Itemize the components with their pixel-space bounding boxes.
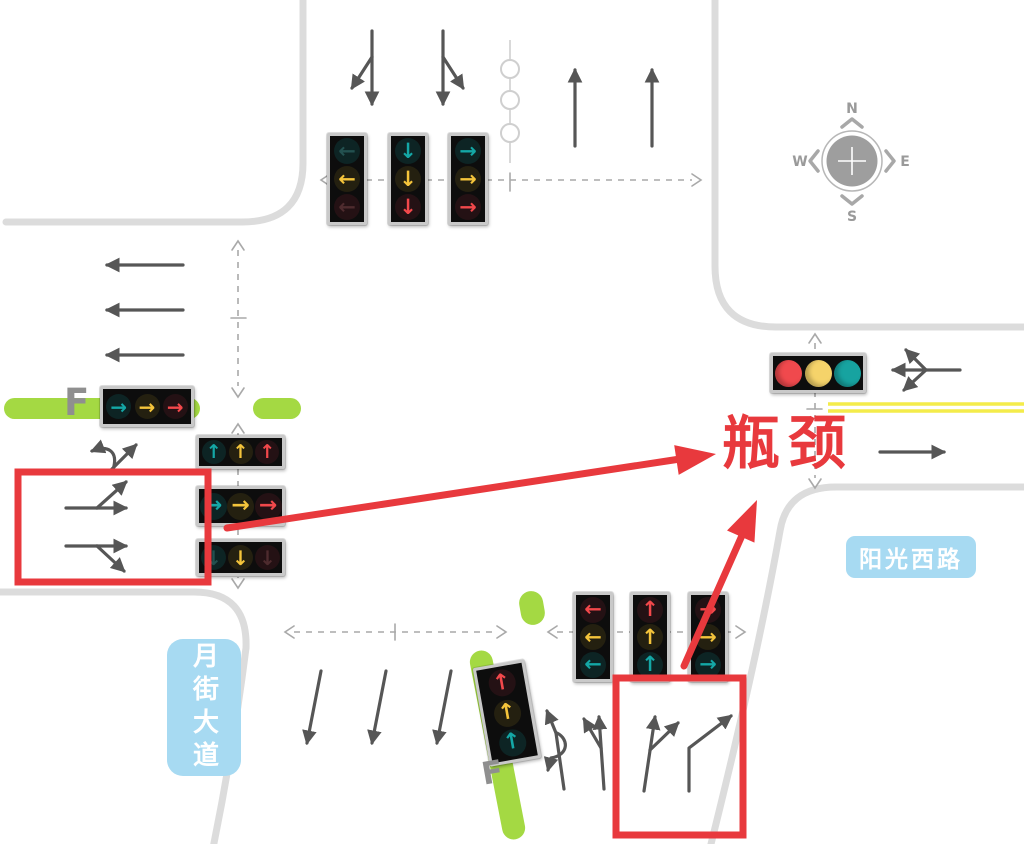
bottleneck-arrow-west [227, 459, 680, 528]
bus-lane-f-label-west: F [64, 384, 89, 421]
intersection-diagram: N S W E ←←←↓↓↓→→→→→→↑↑↑→→→↓↓↓←←←↑↑↑→→→↑↑… [0, 0, 1024, 844]
highlight-rect-south-lanes [616, 678, 743, 835]
bottleneck-arrow-south [684, 531, 744, 666]
annotation-arrows [227, 439, 771, 666]
annotation-rects [18, 472, 743, 835]
highlight-rect-west-lanes [18, 472, 208, 582]
east-road-name-label: 阳光西路 [846, 536, 976, 578]
south-road-name-label: 月街大道 [167, 639, 241, 776]
annotation-layer [0, 0, 1024, 844]
bottleneck-arrowhead-south [727, 494, 771, 543]
bottleneck-label: 瓶颈 [722, 414, 854, 472]
bottleneck-arrowhead-west [674, 439, 718, 475]
